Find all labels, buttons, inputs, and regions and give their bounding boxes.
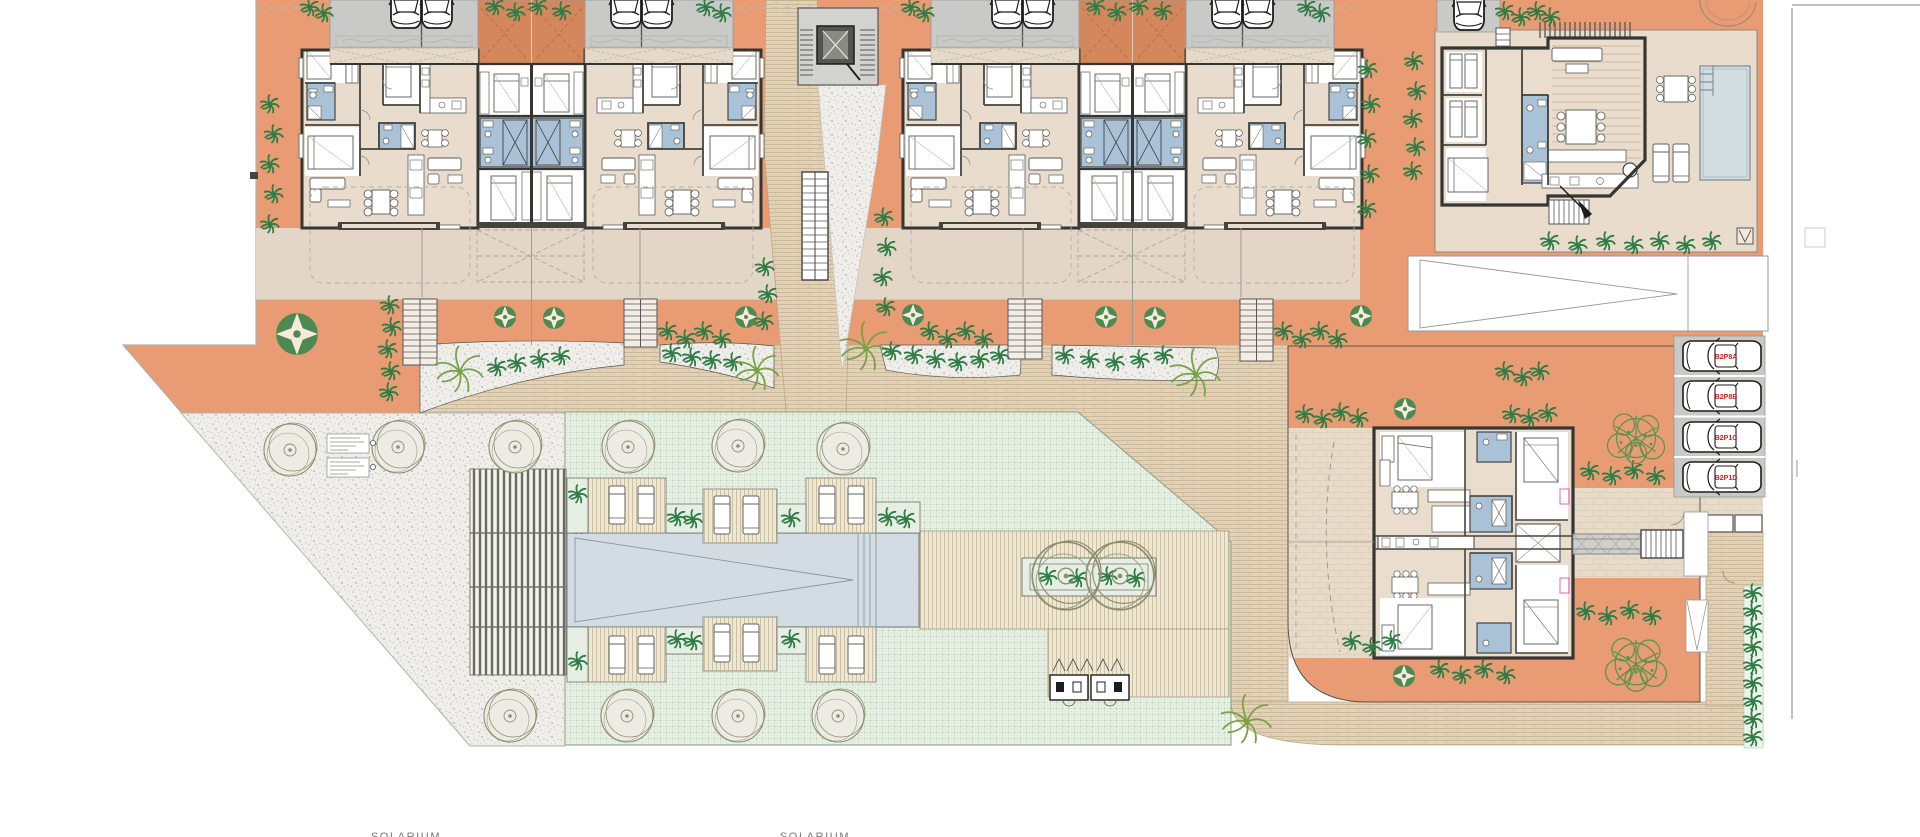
svg-text:B2P1C: B2P1C [1715,435,1738,442]
svg-text:B2P1D: B2P1D [1715,475,1738,482]
svg-text:SOLARIUM: SOLARIUM [780,831,850,837]
svg-text:SOLARIUM: SOLARIUM [371,831,441,837]
svg-text:B2P8A: B2P8A [1715,354,1738,361]
svg-text:B2P8B: B2P8B [1715,394,1738,401]
